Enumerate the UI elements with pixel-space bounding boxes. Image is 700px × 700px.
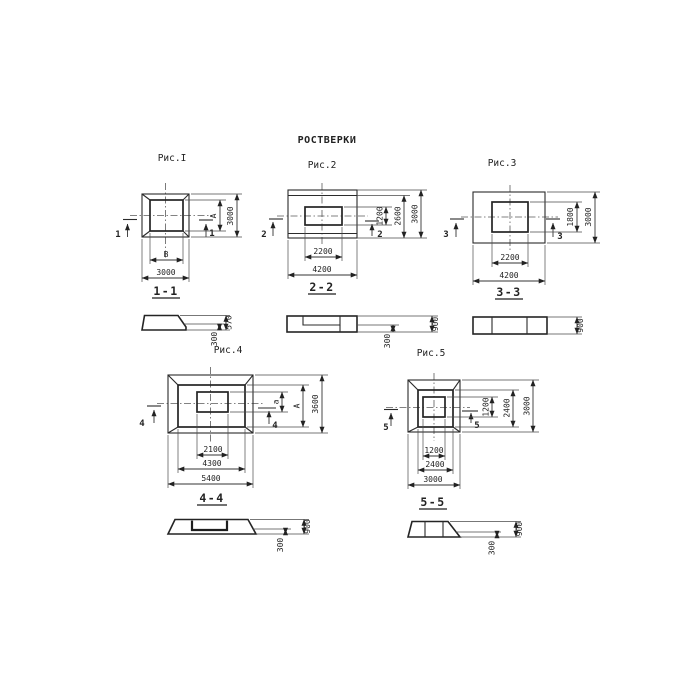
fig4-section-mark-right: 4: [258, 408, 278, 431]
fig5-label: Рис.5: [417, 348, 446, 359]
fig5-dim-3000-h: 3000: [423, 475, 442, 484]
fig4-section-label: 4-4: [199, 491, 224, 505]
fig1-mark-num: 1: [209, 229, 214, 239]
fig2-mark-num: 2: [377, 230, 382, 240]
fig5-mark-num: 5: [474, 421, 479, 431]
fig3-plan: Рис.3 3 3 1800 3000 2200: [443, 158, 600, 299]
fig2-dim-4200: 4200: [312, 265, 331, 274]
fig1-section-mark-left: 1: [115, 220, 137, 241]
fig5-section-mark-right: 5: [462, 411, 480, 431]
fig2-label: Рис.2: [308, 160, 337, 171]
section-2-2: 900 300: [287, 316, 440, 348]
fig4-dim-3600: 3600: [311, 394, 320, 413]
fig3-dims-right: 1800 3000: [530, 192, 600, 243]
fig3-mark-num: 3: [557, 232, 562, 242]
fig5-dims-right: 1200 2400 3000: [447, 380, 539, 432]
scanned-drawing-page: РОСТВЕРКИ Рис.I 1 1 А 3000: [0, 0, 700, 700]
grillage-drawing: РОСТВЕРКИ Рис.I 1 1 А 3000: [0, 0, 700, 700]
fig3-section-mark-right: 3: [546, 219, 563, 242]
fig3-label: Рис.3: [488, 158, 517, 169]
fig2-section-mark-left: 2: [261, 219, 283, 240]
fig4-dim-4300: 4300: [202, 459, 221, 468]
fig2-plan: Рис.2 2 2 1200 2600 3000: [261, 160, 427, 294]
section3-dim-total: 900: [576, 318, 585, 333]
fig3-dim-1800: 1800: [566, 207, 575, 226]
fig3-section-mark-left: 3: [443, 219, 464, 240]
fig4-dim-5400: 5400: [201, 474, 220, 483]
fig5-dim-1200-h: 1200: [424, 446, 443, 455]
fig5-dim-2400-h: 2400: [425, 460, 444, 469]
fig1-mark-num: 1: [115, 230, 120, 240]
fig3-section-label: 3-3: [496, 285, 521, 299]
fig2-dim-3000: 3000: [411, 204, 420, 223]
section4-dim-step: 300: [276, 538, 285, 553]
section4-dim-total: 900: [303, 519, 312, 534]
fig3-dim-3000: 3000: [584, 207, 593, 226]
fig2-section-label: 2-2: [309, 280, 334, 294]
fig5-section-label: 5-5: [420, 495, 445, 509]
section1-dim-total: 570: [225, 315, 234, 330]
section-1-1: 570 300: [142, 315, 234, 346]
fig3-dims-bottom: 2200 4200: [473, 234, 545, 285]
fig5-dim-2400-v: 2400: [503, 398, 512, 417]
section5-dim-step: 300: [488, 541, 497, 556]
fig4-dim-A: А: [293, 403, 302, 408]
section5-dim-total: 900: [515, 522, 524, 537]
fig3-mark-num: 3: [443, 230, 448, 240]
section-4-4: 900 300: [168, 519, 312, 552]
fig5-plan: Рис.5 5 5 1200 2400 3000: [383, 348, 539, 509]
fig4-label: Рис.4: [214, 345, 243, 356]
fig1-dim-3000-v: 3000: [226, 206, 235, 225]
fig2-dim-2200: 2200: [313, 247, 332, 256]
fig1-dim-3000-h: 3000: [156, 268, 175, 277]
fig1-label: Рис.I: [158, 153, 187, 164]
section-5-5: 900 300: [408, 522, 524, 556]
fig1-dim-A: А: [209, 213, 218, 218]
section2-dim-step: 300: [383, 334, 392, 349]
fig3-dim-4200: 4200: [499, 271, 518, 280]
fig2-mark-num: 2: [261, 230, 266, 240]
fig1-plan: Рис.I 1 1 А 3000 В: [115, 153, 242, 298]
fig4-mark-num: 4: [272, 421, 278, 431]
section2-dim-total: 900: [431, 317, 440, 332]
fig5-section-mark-left: 5: [383, 410, 398, 434]
fig1-dim-B: В: [164, 250, 169, 259]
fig4-dim-a: а: [272, 399, 281, 404]
fig1-section-label: 1-1: [153, 284, 178, 298]
fig4-section-mark-left: 4: [139, 406, 161, 429]
section-3-3: 900: [473, 317, 585, 334]
fig2-dim-2600: 2600: [394, 206, 403, 225]
fig4-dim-2100: 2100: [203, 445, 222, 454]
fig5-dim-1200-v: 1200: [482, 397, 491, 416]
fig2-dims-bottom: 2200 4200: [288, 227, 357, 279]
fig5-mark-num: 5: [383, 423, 388, 433]
fig5-dim-3000-v: 3000: [523, 396, 532, 415]
fig2-dim-1200: 1200: [376, 206, 385, 225]
fig4-plan: Рис.4 4 4 а А 3600: [139, 345, 328, 505]
fig4-mark-num: 4: [139, 419, 145, 429]
drawing-title: РОСТВЕРКИ: [298, 135, 357, 146]
fig1-section-mark-right: 1: [199, 220, 215, 239]
fig3-dim-2200: 2200: [500, 253, 519, 262]
